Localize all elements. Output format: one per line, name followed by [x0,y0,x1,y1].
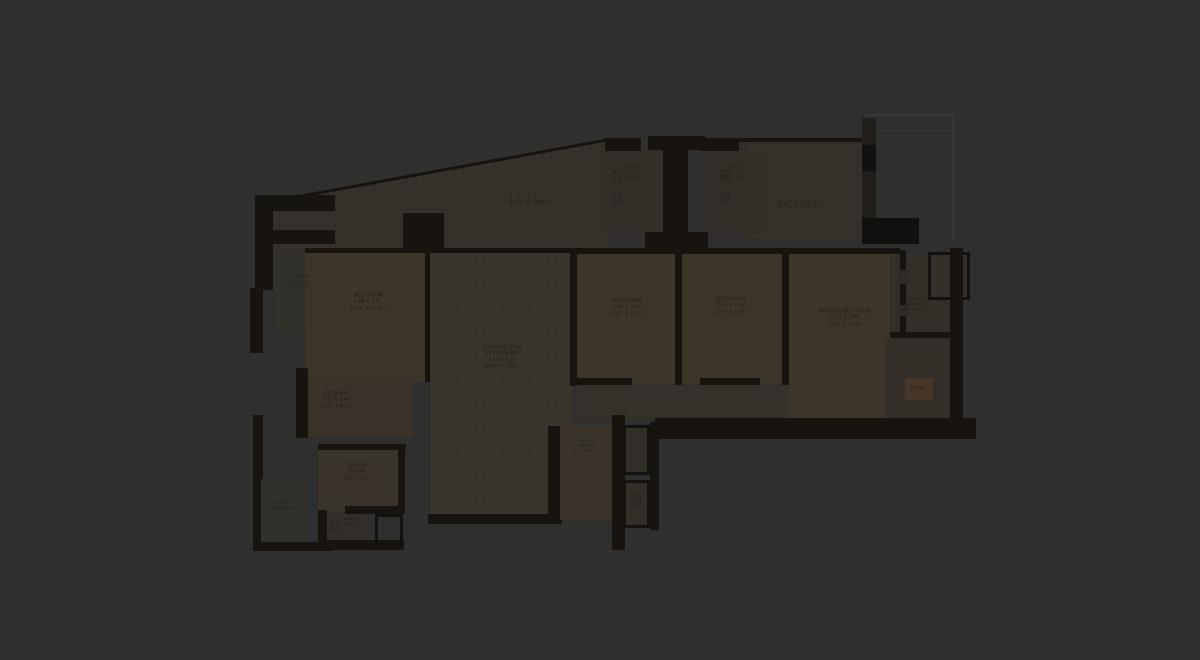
room-label-bedroom-3: BED ROOM3.66 X 3.35(12'0" X 11'0") [714,297,748,316]
room-label-maid-toilet: MAID'STOILET [342,517,357,527]
room-label-toilet-b: TOILET1.5 X 2.4(5'0" X 8'0") [721,165,744,179]
wall-segment [296,368,308,438]
room-kitchen [298,375,413,437]
terrace-outline-mid [874,130,952,131]
room-label-toilet-right: TOILET1.5 X 2.6(5'0" X 8'6") [902,297,925,311]
wall-segment [700,378,760,385]
wall-segment [862,145,876,171]
washbasin-icon [898,270,908,284]
wall-segment [272,230,335,244]
room-toilet-b [705,150,763,234]
wall-segment [782,250,789,386]
wall-segment [788,248,900,254]
room-label-balcony-right: BALCONY [777,201,819,209]
room-label-utility-balcony: UTILITYBALCONY [272,501,293,511]
wc-icon [330,520,340,531]
wall-segment [253,415,263,479]
wall-segment [398,444,405,514]
room-bedroom-3 [682,252,782,384]
wall-segment [605,138,641,151]
wall-segment [253,476,261,550]
room-label-drawing-dining: DRAWING CUMDINING AREA7.16 X 4.72(23'6" … [483,345,522,370]
wall-segment [305,248,427,253]
room-label-toilet-a: TOILET1.5 X 2.4(5'0" X 8'0") [619,165,642,179]
terrace-outline-top [866,114,954,116]
room-bedroom-1 [305,252,425,382]
wall-segment [570,250,577,386]
store-room [375,514,403,546]
wall-segment [255,195,335,211]
page-background: { "page": { "description": "Dimmed archi… [0,0,1200,660]
core-wall-vertical [663,150,688,234]
room-label-maid-room: MAID'SROOM(8'0" X 7'6") [343,463,372,482]
wc-icon [720,192,730,202]
terrace-outline-right [952,114,954,242]
wall-segment [428,514,562,524]
room-toilet-a [602,150,662,234]
lift-shaft [623,425,650,475]
room-label-kitchen: KITCHEN3.35 X 2.44(11'0" X 8'0") [320,391,351,410]
wall-segment [430,248,572,253]
room-bedroom-2 [577,252,675,384]
wall-segment [548,426,560,522]
small-balcony-right [928,252,970,300]
corridor [577,385,789,418]
column-block [403,213,444,251]
room-label-dress: DRESS [911,386,926,391]
wall-segment [250,288,263,353]
room-label-master-bedroom: MASTER BED ROOM4.27 X 3.96(14'0" X 13'0"… [819,309,871,328]
floor-plan: BALCONY BALCONY TOILET1.5 X 2.4(5'0" X 8… [250,110,976,552]
wc-icon [632,495,641,506]
room-label-bedroom-2: BED ROOM3.66 X 3.35(12'0" X 11'0") [610,299,644,318]
wall-segment [318,444,406,450]
wc-icon [612,192,622,202]
wall-segment [345,506,405,514]
wall-segment [650,422,659,530]
room-label-bedroom-1: BED ROOM3.86 X 3.51(12'8" X 11'6") [351,293,385,312]
wall-segment [577,378,632,385]
room-utility-balcony [258,480,306,546]
room-label-balcony-left: BALCONY [509,199,551,207]
wall-segment [862,218,919,244]
wall-segment [675,250,682,386]
room-master-bedroom [789,252,900,418]
room-label-foyer: ENTRANCEFOYER(6'0" X 10'0") [573,439,599,453]
outer-wall-bottom-band [655,418,976,439]
room-label-toilet-top-left: TOILET1.2 X 2.1(4'0" X 7'0") [290,275,313,289]
outer-wall-right [950,248,963,432]
wall-segment [700,138,739,151]
core-wall-top [648,136,705,150]
